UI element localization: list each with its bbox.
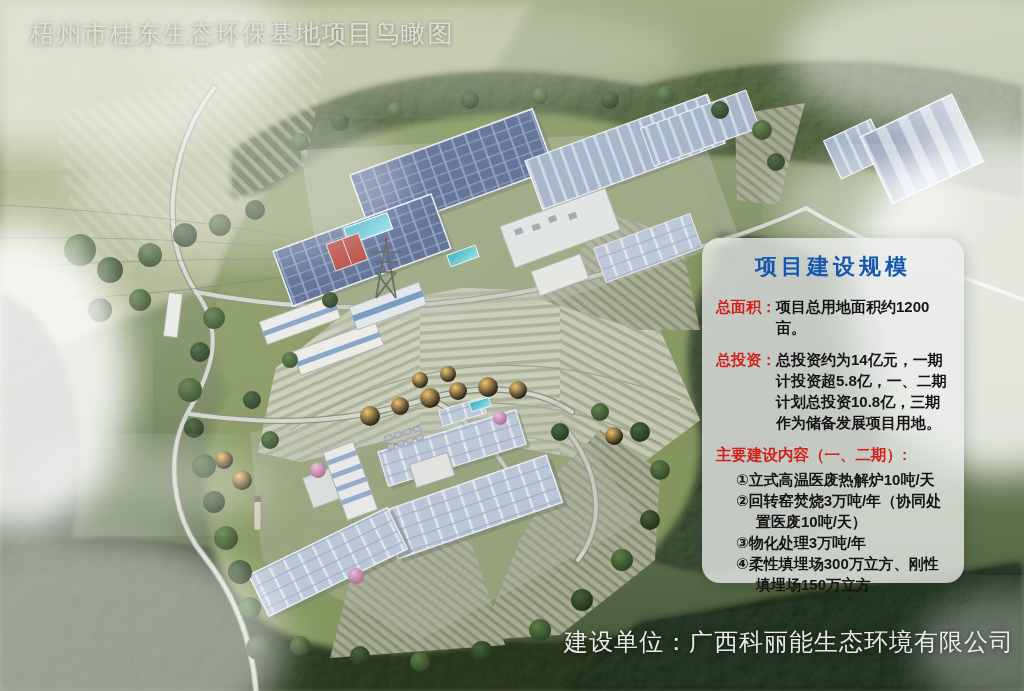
total-investment-value: 总投资约为14亿元，一期计投资超5.8亿，一、二期计划总投资10.8亿，三期作为… xyxy=(776,349,950,433)
construction-items: ①立式高温医废热解炉10吨/天 ②回转窑焚烧3万吨/年（协同处置医废10吨/天）… xyxy=(736,469,950,595)
total-area-label: 总面积： xyxy=(716,296,776,317)
construction-item-4: ④柔性填埋场300万立方、刚性填埋场150万立方 xyxy=(736,553,950,595)
total-area-row: 总面积： 项目总用地面积约1200亩。 xyxy=(716,296,950,338)
construction-item-3: ③物化处理3万吨/年 xyxy=(736,532,950,553)
page-title: 梧州市桂东生态环保基地项目鸟瞰图 xyxy=(30,17,454,50)
construction-item-2: ②回转窑焚烧3万吨/年（协同处置医废10吨/天） xyxy=(736,490,950,532)
project-scale-panel: 项目建设规模 总面积： 项目总用地面积约1200亩。 总投资： 总投资约为14亿… xyxy=(702,238,964,583)
total-investment-label: 总投资： xyxy=(716,349,776,370)
construction-item-1: ①立式高温医废热解炉10吨/天 xyxy=(736,469,950,490)
panel-title: 项目建设规模 xyxy=(716,252,950,282)
total-area-value: 项目总用地面积约1200亩。 xyxy=(776,296,950,338)
total-investment-row: 总投资： 总投资约为14亿元，一期计投资超5.8亿，一、二期计划总投资10.8亿… xyxy=(716,349,950,433)
builder-caption: 建设单位：广西科丽能生态环境有限公司 xyxy=(564,626,1014,658)
construction-content-heading: 主要建设内容（一、二期）: xyxy=(716,445,950,465)
birdseye-screenshot: 梧州市桂东生态环保基地项目鸟瞰图 项目建设规模 总面积： 项目总用地面积约120… xyxy=(0,0,1024,691)
